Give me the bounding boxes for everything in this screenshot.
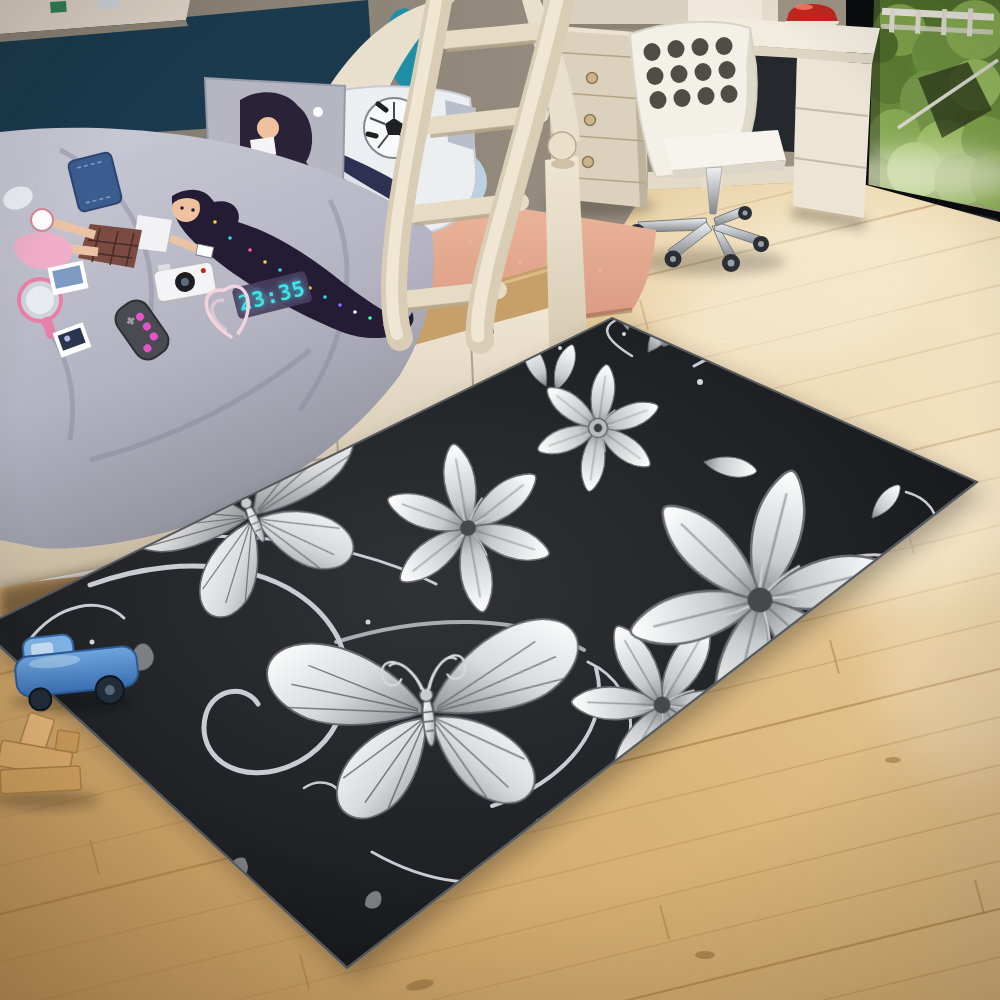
vignette [0, 0, 1000, 1000]
product-photo: 23:35 23:35 [0, 0, 1000, 1000]
room-photo: 23:35 23:35 [0, 0, 1000, 1000]
